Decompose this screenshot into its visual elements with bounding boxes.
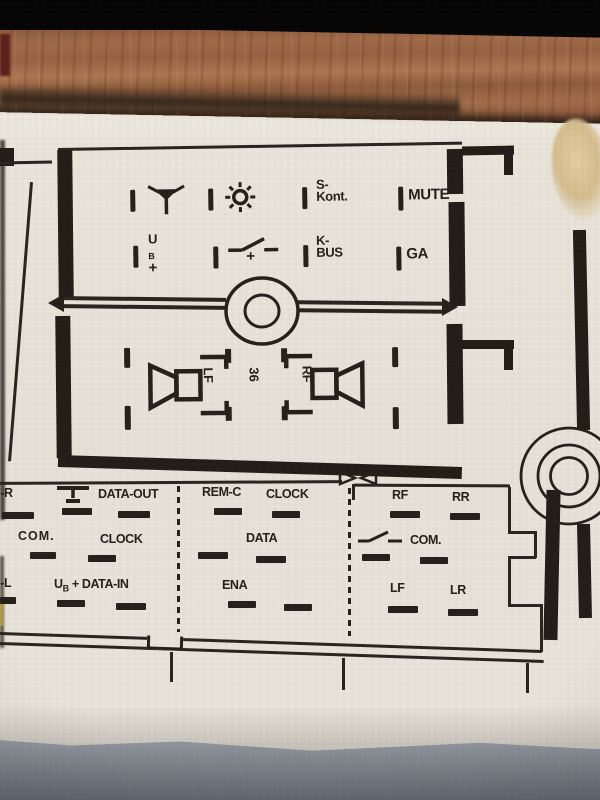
pin-dash <box>30 552 56 559</box>
bottom-border-line <box>0 642 544 663</box>
right-front-speaker-icon <box>280 347 367 420</box>
pin-dash <box>214 508 242 515</box>
pin-dash <box>448 609 478 616</box>
rem-c-label: REM-C <box>202 485 241 499</box>
rr-label: RR <box>452 490 469 504</box>
fl-label: F-L <box>0 576 11 590</box>
clock-label: CLOCK <box>100 532 142 546</box>
pin-dash <box>116 603 146 610</box>
antenna-icon <box>146 185 186 216</box>
pin-row-1: S- Kont. MUTE <box>120 176 501 224</box>
left-front-speaker-icon <box>146 349 233 422</box>
com-label: COM. <box>18 529 55 543</box>
lf-label: LF <box>390 581 404 595</box>
pin-mark <box>133 246 138 268</box>
dashed-separator <box>348 488 351 636</box>
bottom-border-tab <box>147 635 183 650</box>
pin-dash <box>57 600 85 607</box>
plus-label: + <box>148 262 157 274</box>
separator-tick <box>342 658 345 690</box>
com2-label: COM. <box>410 533 441 547</box>
right-bracket-corner <box>504 149 513 175</box>
right-bracket-corner <box>504 344 513 370</box>
bottom-section-top-border-left <box>0 480 342 484</box>
pin-dash <box>388 606 418 613</box>
clock2-label: CLOCK <box>266 487 308 501</box>
top-block-bottom-border <box>58 455 462 479</box>
switched-plus-sign: + <box>246 248 255 265</box>
pin-mark <box>124 348 130 368</box>
mute-label: MUTE <box>408 186 449 204</box>
pin-mark <box>393 407 399 429</box>
ub-plus-label: UB + <box>148 233 158 274</box>
pin-dash <box>2 512 34 519</box>
pin-mark <box>398 187 403 211</box>
pin-dash <box>256 556 286 563</box>
separator-tick <box>170 652 173 682</box>
pin-dash <box>272 511 300 518</box>
ub-label: UB <box>148 233 157 262</box>
adjacent-block-top-line <box>0 161 52 164</box>
switched-contact-icon <box>358 528 402 546</box>
bottom-section-top-border-right <box>354 484 510 487</box>
pin-dash <box>88 555 116 562</box>
band-arrow-left <box>48 294 64 312</box>
bottom-border-line <box>0 632 542 653</box>
pin-mark <box>396 247 401 271</box>
adjacent-block-right-border <box>8 182 33 461</box>
lr-label: LR <box>450 583 466 597</box>
pin-dash <box>420 557 448 564</box>
ga-label: GA <box>406 245 428 262</box>
pin-dash <box>450 513 480 520</box>
band-line <box>298 308 446 313</box>
band-arrow-right <box>442 298 458 316</box>
separator-tick <box>526 663 529 693</box>
speaker-row: LF 36 RF <box>118 340 459 438</box>
pin-mark <box>125 406 131 430</box>
right-key-edge <box>508 556 536 559</box>
screw-icon <box>220 270 304 350</box>
band-line <box>64 304 226 309</box>
k-bus-label: K- BUS <box>316 235 343 259</box>
s-kont-label: S- Kont. <box>316 178 348 202</box>
pin-dash <box>228 601 256 608</box>
band-line <box>298 300 446 305</box>
right-key-edge <box>508 604 542 607</box>
pin-dash <box>118 511 150 518</box>
pin-dash <box>0 597 16 604</box>
top-block-left-border-upper <box>57 150 74 298</box>
data-out-label: DATA-OUT <box>98 487 158 501</box>
pin-mark <box>392 347 398 367</box>
pin-mark <box>302 187 307 209</box>
pin-mark <box>208 189 213 211</box>
illumination-icon <box>224 181 256 213</box>
large-screw-icon <box>509 416 600 538</box>
right-key-edge <box>540 604 543 652</box>
pin-dash <box>198 552 228 559</box>
pin-mark <box>303 245 308 267</box>
photo-left-edge-shadow <box>0 140 5 520</box>
pin-dash <box>284 604 312 611</box>
right-edge-block-border <box>573 230 590 430</box>
ground-icon <box>54 482 92 506</box>
pin-dash <box>390 511 420 518</box>
printed-pinout-diagram: S- Kont. MUTE UB + + <box>0 0 600 800</box>
right-speaker-label: RF <box>301 366 313 383</box>
pin-dash <box>62 508 92 515</box>
pin-row-2: UB + + K- BUS GA <box>120 230 501 282</box>
rf-label: RF <box>392 488 408 502</box>
pin-dash <box>362 554 390 561</box>
left-speaker-label: LF <box>202 367 214 382</box>
top-block-top-border <box>58 142 462 151</box>
center-rotated-label: 36 <box>247 367 259 382</box>
data-label: DATA <box>246 531 277 545</box>
top-block-left-border-lower <box>55 316 71 458</box>
ena-label: ENA <box>222 578 247 592</box>
dashed-separator <box>177 486 180 632</box>
ub-plus-datain-label: UB + DATA-IN <box>54 577 129 594</box>
photo-of-radio-pinout-label: S- Kont. MUTE UB + + <box>0 0 600 800</box>
pin-mark <box>130 190 135 212</box>
fr-label: F-R <box>0 486 13 500</box>
pin-mark <box>213 246 218 268</box>
right-key-edge <box>508 556 511 606</box>
band-line <box>64 296 226 301</box>
right-block-corner <box>352 484 355 500</box>
right-edge-block-border <box>577 524 592 618</box>
